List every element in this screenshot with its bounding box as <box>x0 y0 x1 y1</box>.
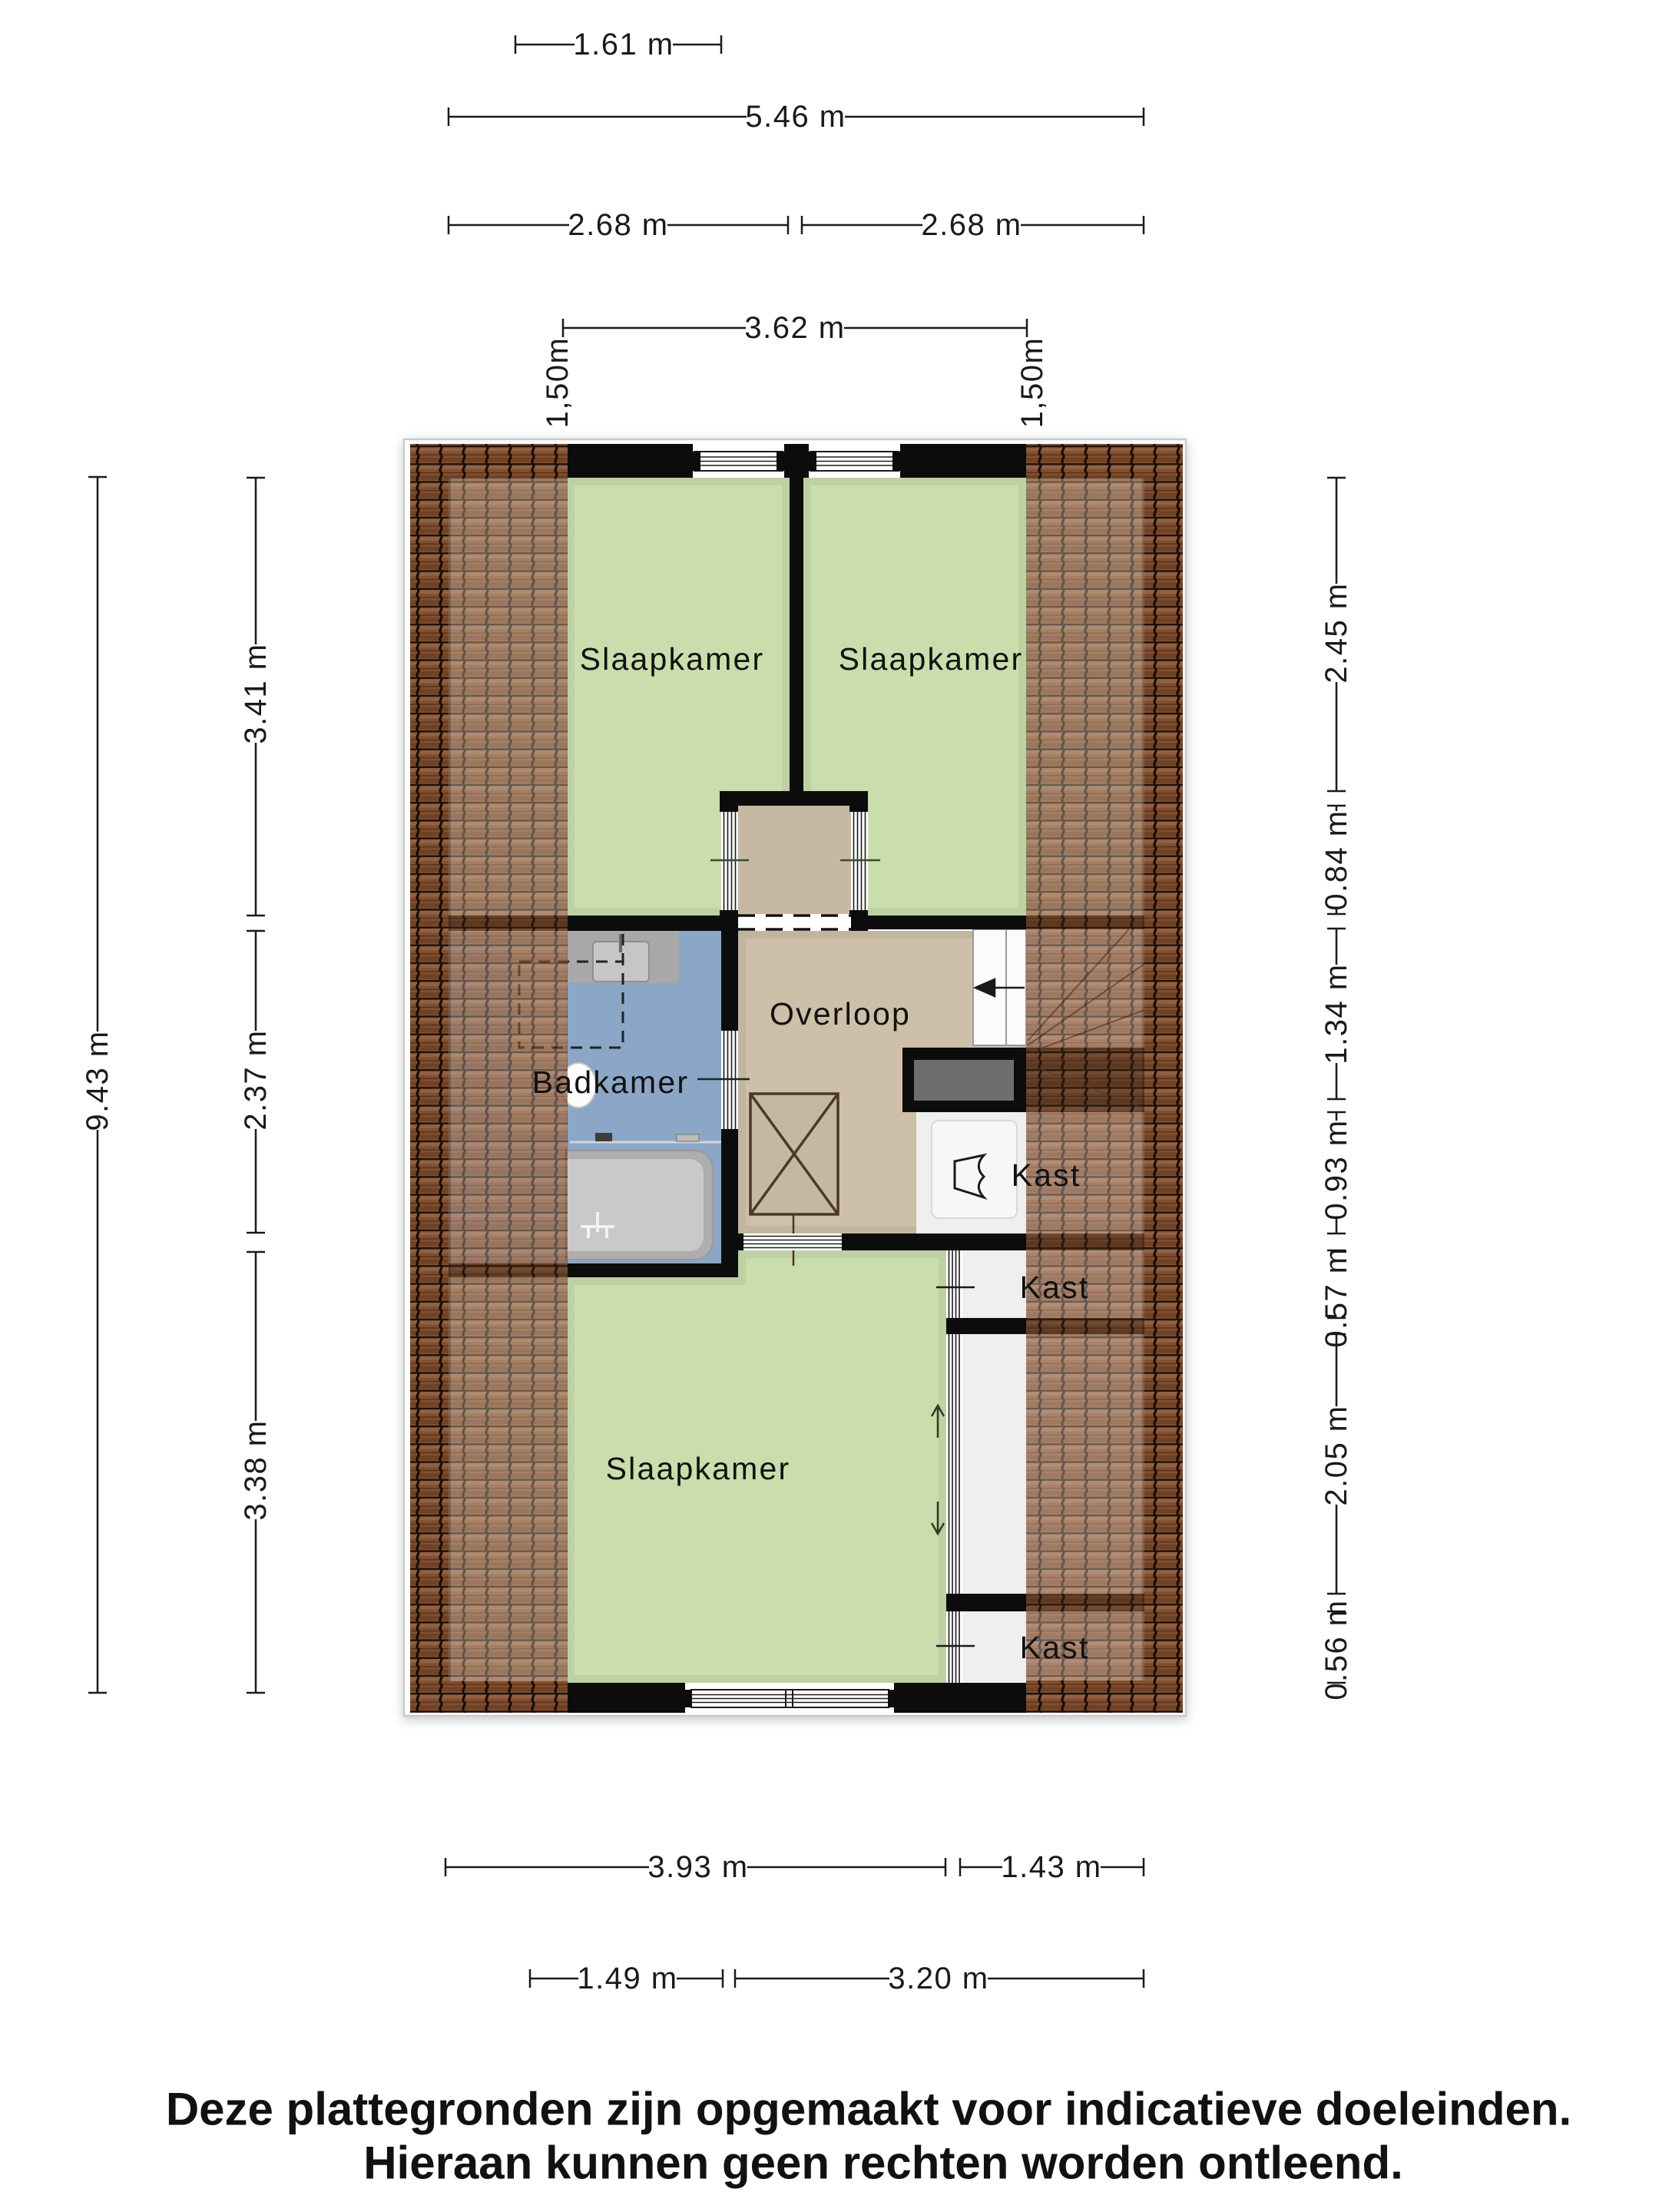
svg-text:9.43 m: 9.43 m <box>81 1030 114 1131</box>
svg-text:Deze plattegronden zijn opgema: Deze plattegronden zijn opgemaakt voor i… <box>166 2084 1571 2135</box>
svg-text:1.43 m: 1.43 m <box>1001 1850 1101 1884</box>
svg-text:3.62 m: 3.62 m <box>744 311 845 345</box>
svg-text:2.37 m: 2.37 m <box>239 1029 273 1130</box>
svg-text:Hieraan kunnen geen rechten wo: Hieraan kunnen geen rechten worden ontle… <box>363 2137 1403 2189</box>
svg-text:Slaapkamer: Slaapkamer <box>839 641 1024 677</box>
svg-text:Kast: Kast <box>1020 1630 1090 1665</box>
svg-text:1.61 m: 1.61 m <box>573 28 674 61</box>
svg-text:0.57 m: 0.57 m <box>1320 1247 1353 1347</box>
svg-text:0.84 m: 0.84 m <box>1320 810 1353 910</box>
svg-text:1,50m: 1,50m <box>541 337 575 429</box>
svg-text:1.34 m: 1.34 m <box>1320 963 1353 1064</box>
svg-text:Kast: Kast <box>1020 1270 1090 1305</box>
svg-text:Overloop: Overloop <box>770 996 911 1031</box>
svg-text:Badkamer: Badkamer <box>532 1065 689 1100</box>
svg-text:5.46 m: 5.46 m <box>745 100 846 134</box>
svg-text:0.56 m: 0.56 m <box>1320 1599 1353 1700</box>
svg-text:2.45 m: 2.45 m <box>1320 582 1353 683</box>
svg-text:1.49 m: 1.49 m <box>577 1962 677 1995</box>
svg-text:Slaapkamer: Slaapkamer <box>580 641 765 677</box>
svg-text:2.68 m: 2.68 m <box>568 208 668 242</box>
svg-text:0.93 m: 0.93 m <box>1320 1119 1353 1220</box>
svg-text:2.68 m: 2.68 m <box>921 208 1022 242</box>
svg-text:3.20 m: 3.20 m <box>888 1962 988 1995</box>
svg-text:2.05 m: 2.05 m <box>1320 1405 1353 1505</box>
svg-text:1,50m: 1,50m <box>1015 337 1049 429</box>
svg-text:3.38 m: 3.38 m <box>239 1419 273 1520</box>
svg-text:Kast: Kast <box>1012 1157 1081 1193</box>
svg-text:3.41 m: 3.41 m <box>239 643 273 743</box>
svg-text:3.93 m: 3.93 m <box>647 1850 748 1884</box>
svg-text:Slaapkamer: Slaapkamer <box>606 1451 791 1486</box>
